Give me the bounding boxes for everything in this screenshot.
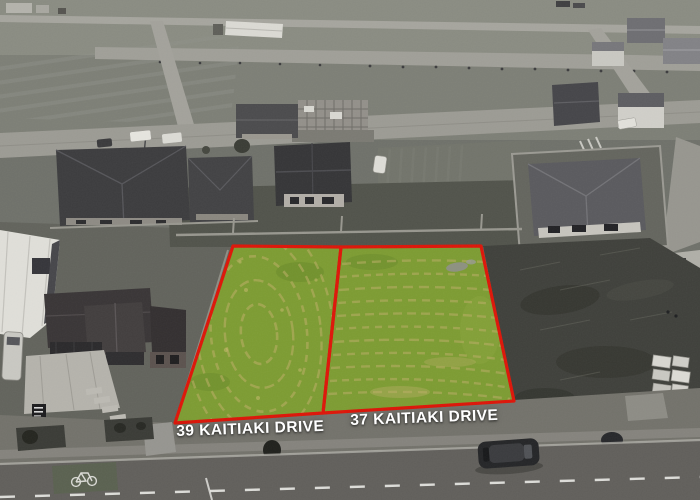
aerial-photo: 39 KAITIAKI DRIVE 37 KAITIAKI DRIVE: [0, 0, 700, 500]
